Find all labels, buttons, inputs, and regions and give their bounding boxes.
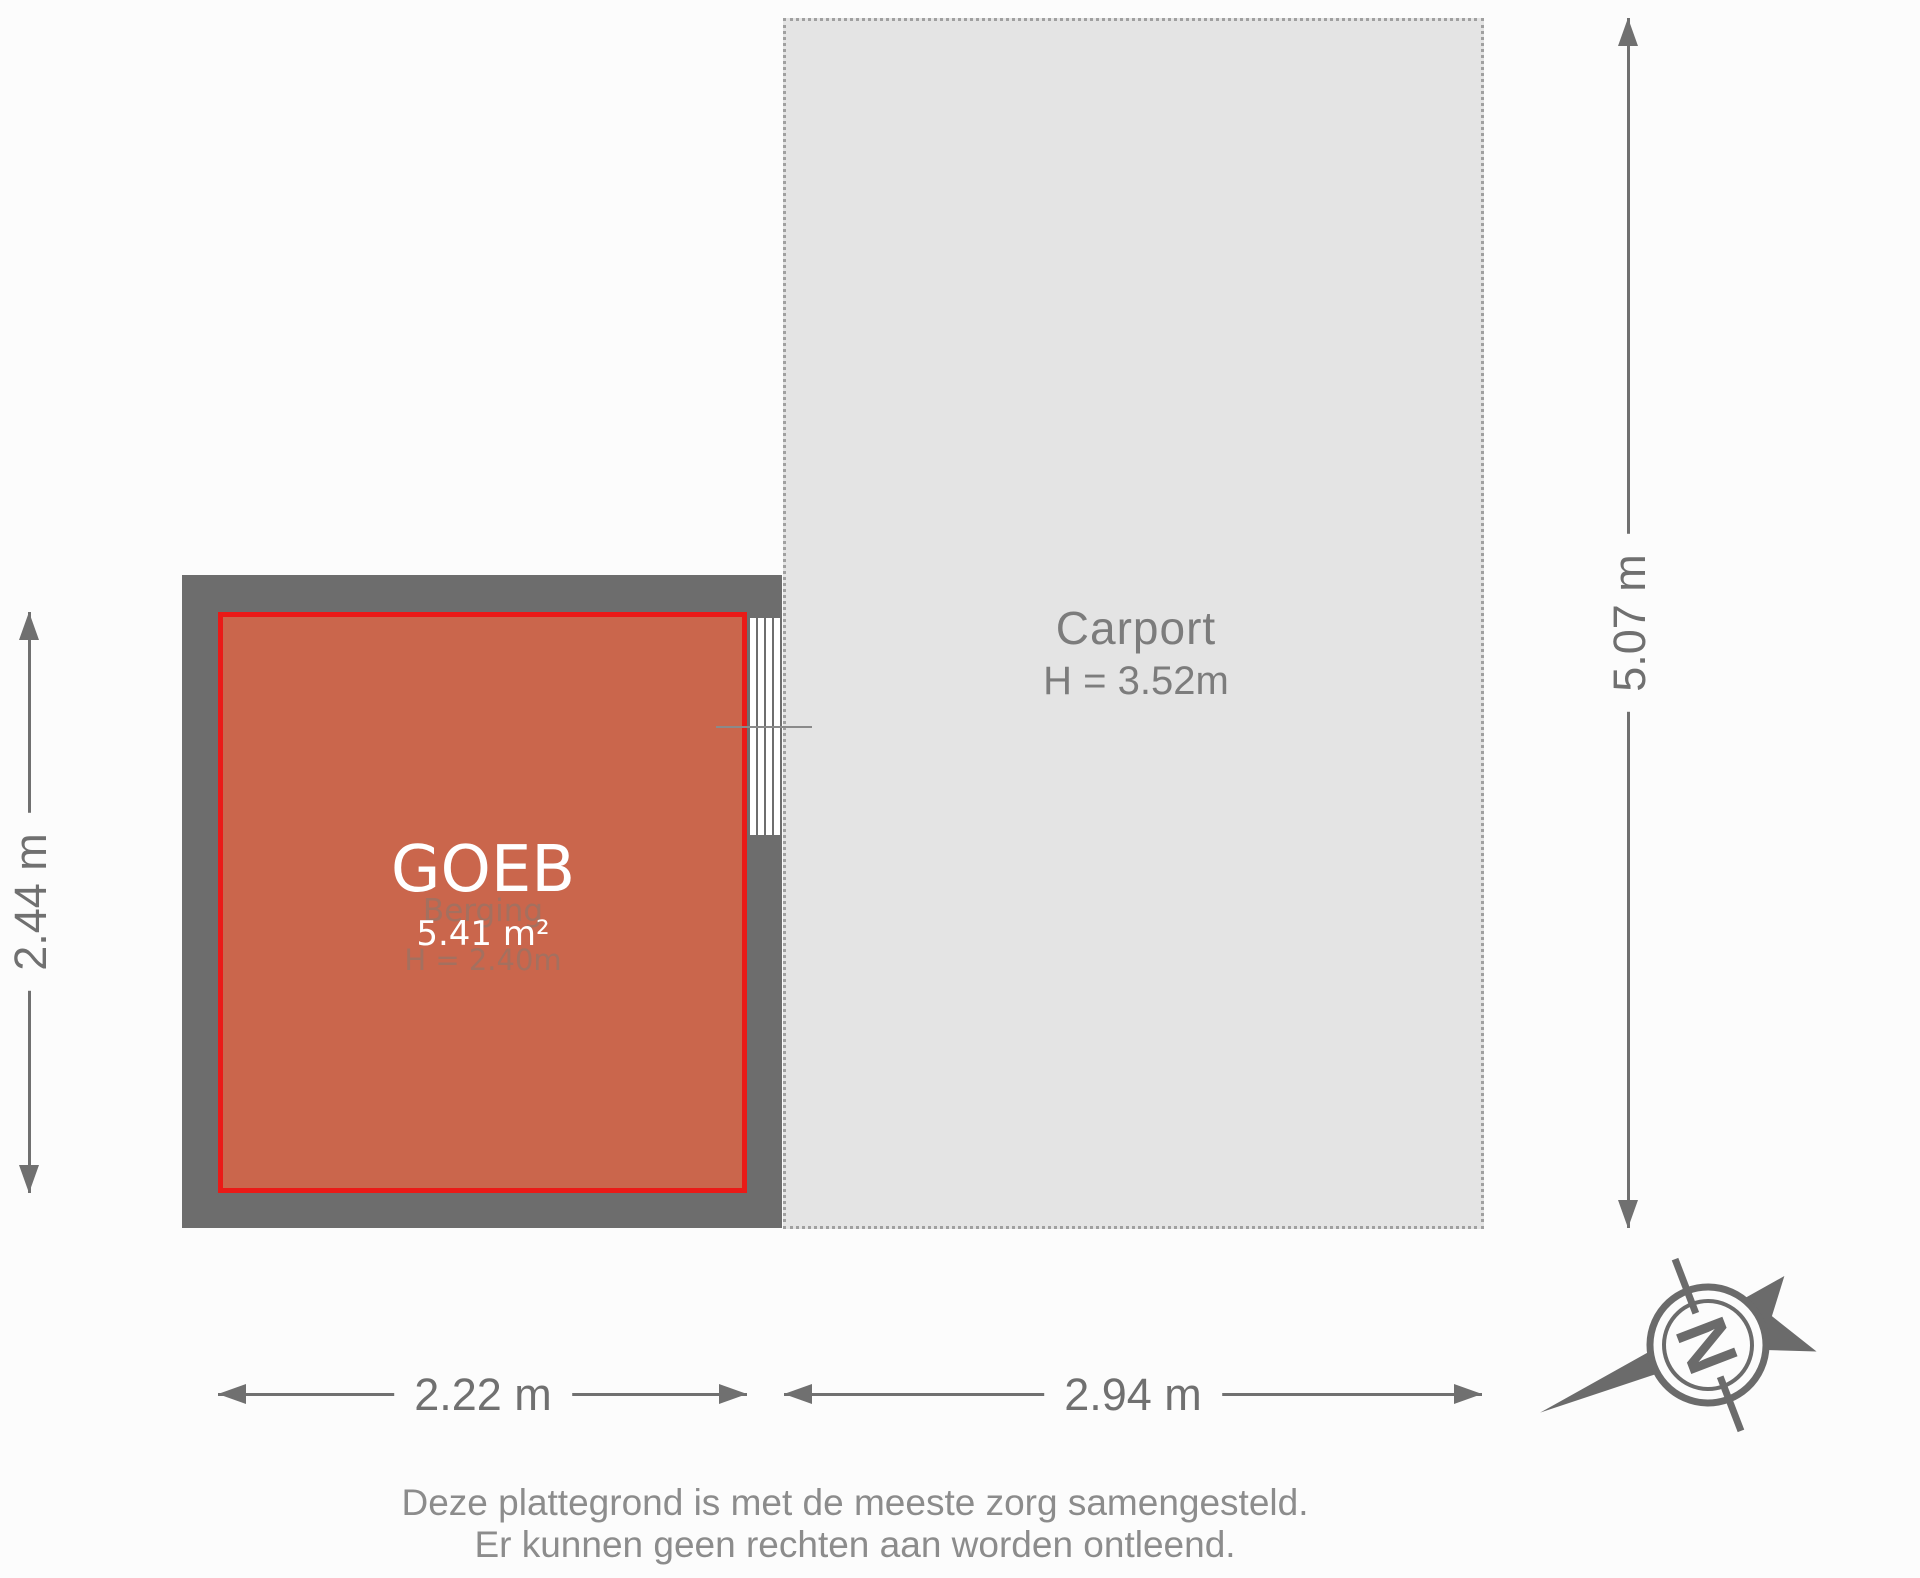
bottom-left-dimension-label: 2.22 m bbox=[394, 1369, 572, 1421]
bottom-right-dimension-arrow-right-icon bbox=[1454, 1384, 1482, 1404]
bottom-left-dimension-arrow-left-icon bbox=[218, 1384, 246, 1404]
floorplan-canvas: Carport H = 3.52m Berging H = 2.40m GOEB… bbox=[0, 0, 1920, 1578]
left-dimension-arrow-down-icon bbox=[19, 1165, 39, 1193]
compass-north-icon: N bbox=[1528, 1232, 1898, 1452]
disclaimer-line-1: Deze plattegrond is met de meeste zorg s… bbox=[0, 1482, 1710, 1524]
carport-height-label: H = 3.52m bbox=[986, 660, 1286, 702]
window-sill-line bbox=[716, 726, 812, 728]
disclaimer-text: Deze plattegrond is met de meeste zorg s… bbox=[0, 1482, 1710, 1566]
bottom-right-dimension-label: 2.94 m bbox=[1044, 1369, 1222, 1421]
room-overlay-name: GOEB bbox=[283, 834, 683, 906]
right-dimension-arrow-down-icon bbox=[1618, 1200, 1638, 1228]
left-dimension-label: 2.44 m bbox=[5, 813, 57, 991]
bottom-right-dimension-arrow-left-icon bbox=[784, 1384, 812, 1404]
right-dimension-arrow-up-icon bbox=[1618, 18, 1638, 46]
room-area-label: 5.41 m² bbox=[283, 914, 683, 954]
left-dimension-arrow-up-icon bbox=[19, 612, 39, 640]
bottom-left-dimension-arrow-right-icon bbox=[719, 1384, 747, 1404]
right-dimension-label: 5.07 m bbox=[1604, 534, 1656, 712]
carport-name-label: Carport bbox=[986, 604, 1286, 652]
disclaimer-line-2: Er kunnen geen rechten aan worden ontlee… bbox=[0, 1524, 1710, 1566]
